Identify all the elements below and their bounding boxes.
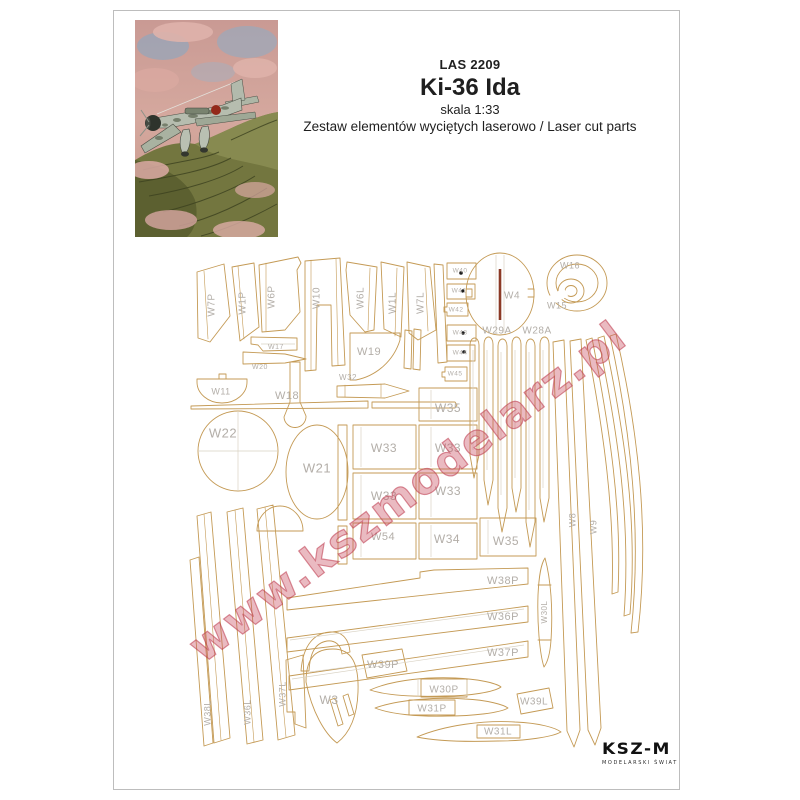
part-label: W19 [357,346,381,358]
part-label: W37P [487,647,519,659]
part-label: W39L [520,697,548,708]
part-label: W36P [487,611,519,623]
brand-logo: KSZ-M MODELARSKI ŚWIAT [602,740,678,766]
part-label: W6P [267,285,278,308]
part-label: W41 [452,288,467,295]
part-label: W33 [371,489,397,503]
part-label: W32 [339,373,357,382]
part-label: W54 [371,531,395,543]
part-label: W37L [277,681,287,707]
part-label: W9 [588,520,598,535]
part-label: W11 [211,386,230,396]
part-label: W21 [303,460,331,475]
part-label: W15 [547,300,567,310]
part-label: W7P [207,293,218,316]
part-label: W33 [435,441,461,455]
parts-diagram: W7PW1PW6PW10W6LW1LW7LW40W41W42W43W44W45W… [0,0,800,800]
part-label: W43 [453,330,468,337]
part-label: W33 [435,484,461,498]
part-label: W34 [434,532,460,546]
part-label: W10 [312,287,323,309]
part-label: W38L [202,700,212,726]
part-label: W28A [522,326,551,337]
part-label: W31P [417,704,446,715]
part-label: W1P [238,291,249,314]
product-photo: LAS 2209 Ki-36 Ida skala 1:33 Zestaw ele… [0,0,800,800]
part-label: W35 [435,401,461,415]
part-label: W18 [275,390,299,402]
part-label: W4 [504,291,520,302]
part-label: W8 [567,513,577,528]
part-label: W45 [448,371,463,378]
part-label: W42 [449,307,464,314]
part-label: W38P [487,575,519,587]
part-label: W35 [493,534,519,548]
part-label: W33 [371,441,397,455]
part-label: W17 [268,344,284,351]
part-label: W30P [429,685,458,696]
part-label: W39P [367,659,399,671]
part-label: W36L [242,699,252,725]
part-label: W30L [540,601,549,624]
part-label: W6L [356,287,367,309]
part-label: W44 [453,350,468,357]
part-label: W3 [320,693,339,707]
part-label: W7L [416,292,427,314]
part-label: W31L [484,727,512,738]
brand-name: KSZ-M [602,740,678,758]
brand-tagline: MODELARSKI ŚWIAT [602,760,678,766]
part-label: W29A [482,326,511,337]
part-label: W20 [252,364,268,371]
part-label: W16 [560,260,580,270]
part-label: W1L [388,292,399,314]
part-label: W22 [209,425,237,440]
part-label: W40 [453,268,468,275]
